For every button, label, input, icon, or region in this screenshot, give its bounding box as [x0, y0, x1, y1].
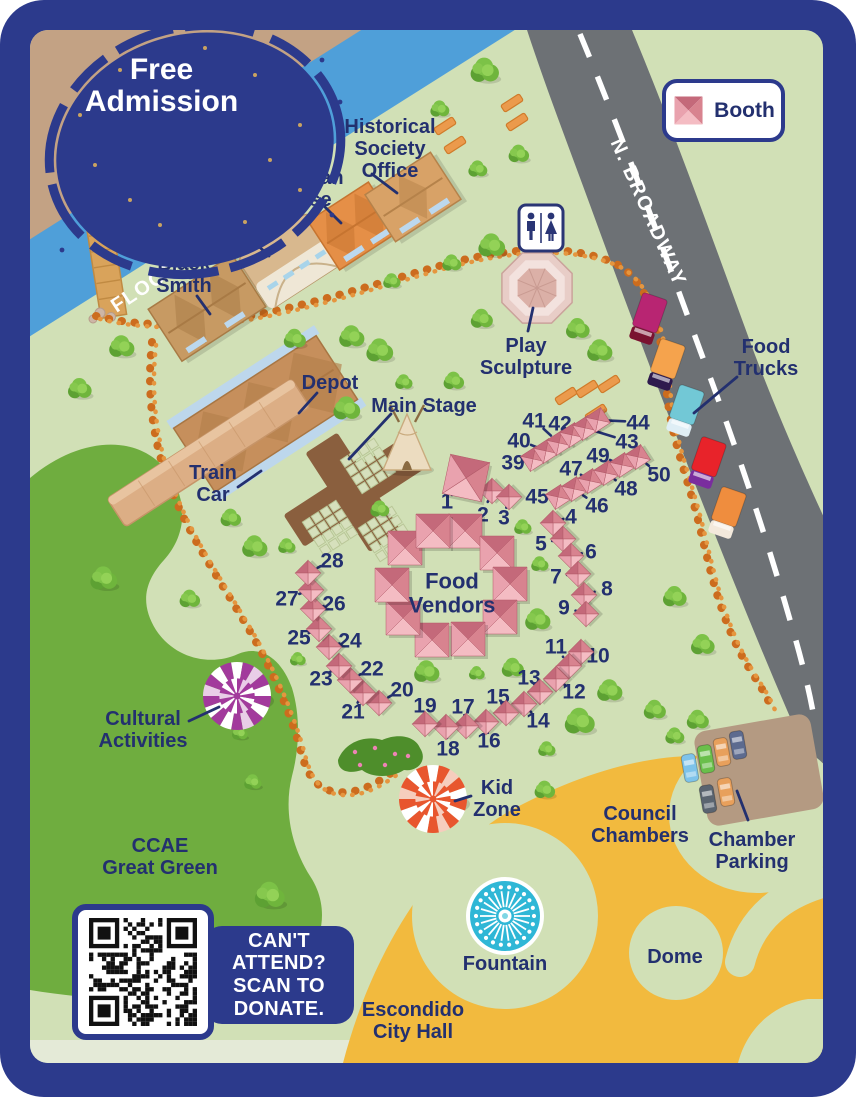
booth-icon	[672, 94, 705, 127]
booth-number: 9	[558, 596, 570, 619]
booth-1	[442, 454, 493, 505]
booth-number: 45	[525, 485, 549, 508]
donate-line3: SCAN TO	[204, 975, 354, 998]
donate-panel: CAN'T ATTEND? SCAN TO DONATE.	[204, 926, 354, 1024]
booth-number: 46	[585, 494, 608, 517]
map-label-fountain: Fountain	[463, 953, 547, 975]
booth-38	[416, 514, 453, 551]
booth-number: 3	[498, 506, 510, 529]
booth-33	[451, 622, 488, 659]
booth-number: 18	[436, 737, 460, 760]
booth-number: 20	[390, 678, 413, 701]
booth-legend: Booth	[662, 79, 785, 142]
donate-line4: DONATE.	[204, 998, 354, 1021]
booth-29	[448, 514, 485, 551]
donation-qr-card	[72, 904, 214, 1040]
booth-number: 39	[501, 451, 524, 474]
play-sculpture-icon	[502, 253, 572, 323]
map-label-depot: Depot	[302, 372, 359, 394]
map-label-food-trucks: FoodTrucks	[734, 336, 798, 380]
booth-number: 7	[550, 565, 562, 588]
free-admission-line1: Free	[64, 54, 259, 86]
booth-number: 28	[320, 549, 344, 572]
map-label-escondido-city-hall: EscondidoCity Hall	[362, 999, 464, 1043]
booth-number: 23	[309, 667, 332, 690]
free-admission-line2: Admission	[64, 86, 259, 118]
booth-number: 8	[601, 577, 613, 600]
booth-number: 40	[507, 429, 530, 452]
map-label-main-stage: Main Stage	[371, 395, 477, 417]
donate-line2: ATTEND?	[204, 952, 354, 975]
map-label-chamber-parking: ChamberParking	[709, 829, 796, 873]
map-label-dome: Dome	[647, 946, 703, 968]
booth-number: 48	[614, 477, 638, 500]
booth-legend-label: Booth	[714, 99, 775, 123]
donate-line1: CAN'T	[204, 930, 354, 953]
event-map-poster: 2345678910111213141516171819202122232425…	[0, 0, 856, 1097]
booth-number: 5	[535, 532, 547, 555]
booth-number: 50	[647, 463, 670, 486]
booth-number: 11	[545, 635, 568, 658]
booth-number: 47	[559, 457, 582, 480]
booth-number: 27	[275, 587, 298, 610]
qr-code-icon	[89, 918, 197, 1026]
restroom-icon	[519, 205, 563, 251]
booth-number: 41	[522, 409, 546, 432]
free-admission-badge: Free Admission	[64, 54, 259, 118]
booth-31	[493, 567, 530, 604]
booth-number: 6	[585, 540, 597, 563]
fountain-icon	[466, 877, 544, 955]
map-label-council-chambers: CouncilChambers	[591, 803, 689, 847]
booth-36	[375, 568, 412, 605]
map-label-cultural-activities: CulturalActivities	[99, 708, 188, 752]
booth-number: 44	[626, 411, 650, 434]
